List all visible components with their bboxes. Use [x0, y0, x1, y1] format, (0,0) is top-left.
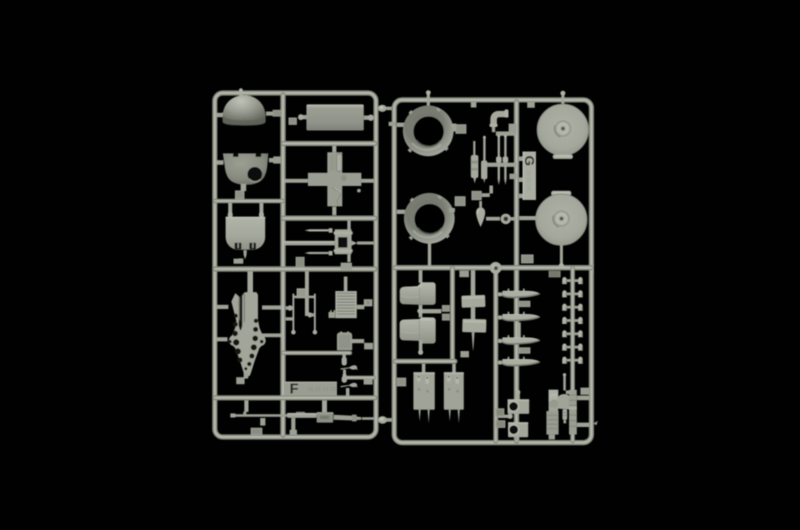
svg-text:16 15 14 13: 16 15 14 13: [308, 387, 336, 393]
svg-text:16 15 14: 16 15 14: [525, 170, 531, 190]
svg-text:F: F: [290, 382, 299, 398]
svg-text:G: G: [522, 156, 537, 166]
